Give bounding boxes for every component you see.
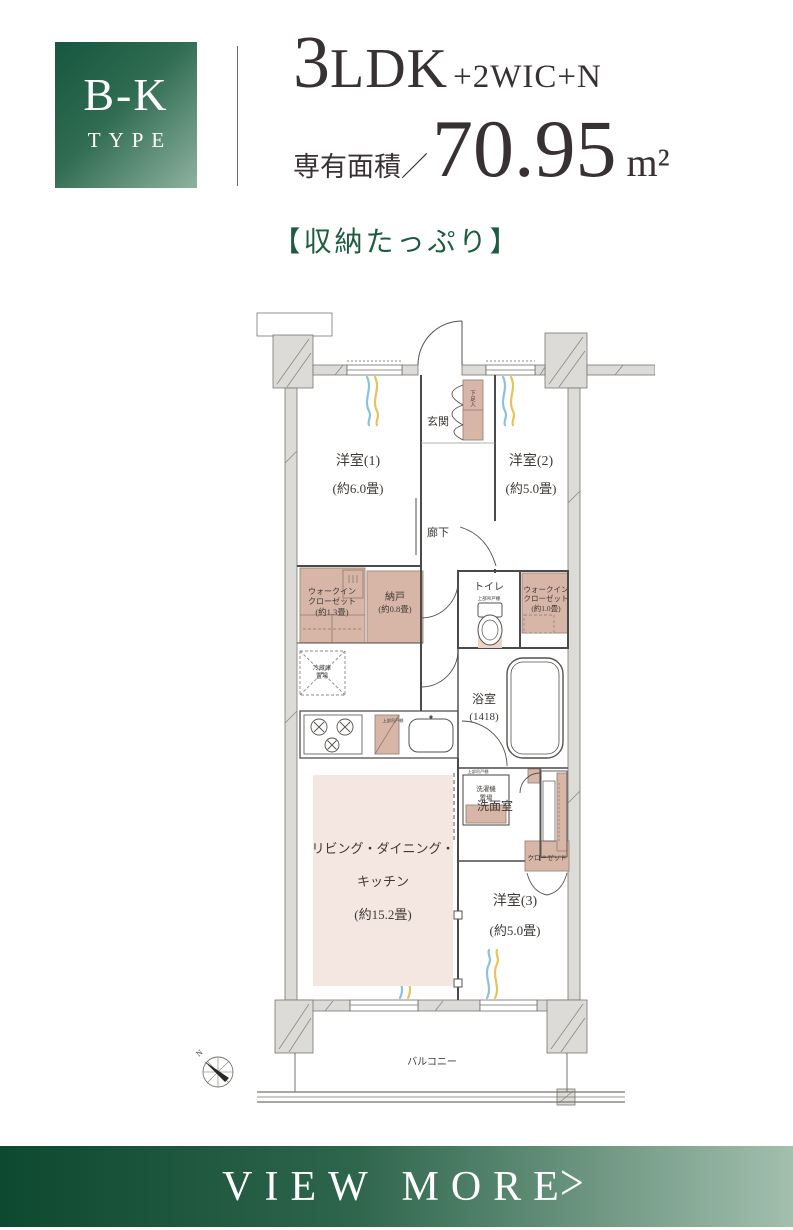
stove-icon: [311, 719, 353, 752]
sink-icon: [409, 715, 453, 752]
label-ldk-line2: キッチン: [357, 874, 409, 889]
label-wic1-line2: クローゼット: [308, 596, 356, 606]
catch-copy: 【収納たっぷり】: [0, 220, 793, 260]
area-value: 70.95: [432, 108, 617, 190]
label-hallway: 廊下: [427, 525, 449, 539]
label-room1-name: 洋室(1): [336, 452, 381, 469]
label-shoebox: 下足入: [470, 390, 476, 409]
label-washer-line1: 洗濯機: [476, 784, 496, 793]
chevron-right-icon: >: [560, 1155, 584, 1213]
area-label: 専有面積／: [293, 145, 428, 184]
label-bath-size: (1418): [469, 711, 499, 723]
label-balcony: バルコニー: [407, 1056, 457, 1068]
layout-count: 3: [293, 26, 330, 100]
label-wic2-line2: クローゼット: [524, 593, 569, 603]
label-bath-name: 浴室: [472, 691, 496, 706]
label-fridge-line2: 置場: [316, 672, 328, 680]
label-compass-n: N: [195, 1048, 205, 1059]
area-unit: m²: [627, 139, 670, 186]
toilet-icon: [478, 603, 502, 648]
label-ldk-size: (約15.2畳): [354, 907, 411, 922]
label-room3-name: 洋室(3): [493, 892, 538, 909]
label-closet3: クローゼット: [528, 853, 567, 862]
layout-title: 3 LDK +2WIC+N: [293, 26, 670, 100]
entrance-door: [418, 321, 462, 365]
label-toilet-shelf: 上部吊戸棚: [478, 595, 501, 602]
bathtub-icon: [507, 658, 563, 758]
label-toilet: トイレ: [474, 582, 504, 593]
label-wic2-size: (約1.0畳): [531, 603, 561, 613]
label-room2-name: 洋室(2): [509, 452, 554, 469]
type-badge-sub: TYPE: [55, 130, 197, 151]
plan-title-block: 3 LDK +2WIC+N 専有面積／ 70.95 m²: [293, 26, 670, 190]
type-badge-label: B-K: [55, 72, 197, 118]
layout-extra: +2WIC+N: [453, 61, 602, 94]
label-room2-size: (約5.0畳): [506, 481, 557, 496]
label-ldk-line1: リビング・ダイニング・: [311, 841, 454, 856]
label-room3-size: (約5.0畳): [490, 923, 541, 938]
label-washer-line2: 置場: [480, 793, 494, 802]
type-badge: B-K TYPE: [55, 42, 197, 188]
label-room1-size: (約6.0畳): [333, 481, 384, 496]
floor-plan-svg: 玄関下足入洋室(1)(約6.0畳)洋室(2)(約5.0畳)廊下ウォークインクロー…: [195, 303, 655, 1115]
label-wic1-size: (約1.3畳): [315, 607, 348, 617]
label-genkan: 玄関: [427, 414, 449, 428]
label-kitchen-shelf: 上部吊戸棚: [383, 717, 404, 724]
view-more-button[interactable]: VIEW MORE >: [0, 1146, 793, 1227]
refrigerator-space: [300, 651, 345, 695]
label-washroom-shelf: 上部吊戸棚: [468, 768, 489, 775]
label-fridge-line1: 冷蔵庫: [313, 664, 331, 672]
area-line: 専有面積／ 70.95 m²: [293, 108, 670, 190]
label-nando-size: (約0.8畳): [378, 604, 411, 614]
label-nando-name: 納戸: [385, 590, 405, 603]
header-divider: [237, 46, 238, 186]
label-wic2-line1: ウォークイン: [524, 585, 569, 594]
floor-plan: 玄関下足入洋室(1)(約6.0畳)洋室(2)(約5.0畳)廊下ウォークインクロー…: [195, 303, 655, 1115]
layout-ldk: LDK: [330, 41, 448, 97]
label-wic1-line1: ウォークイン: [308, 587, 356, 596]
view-more-label: VIEW MORE: [222, 1163, 571, 1211]
compass-icon: [203, 1057, 233, 1087]
